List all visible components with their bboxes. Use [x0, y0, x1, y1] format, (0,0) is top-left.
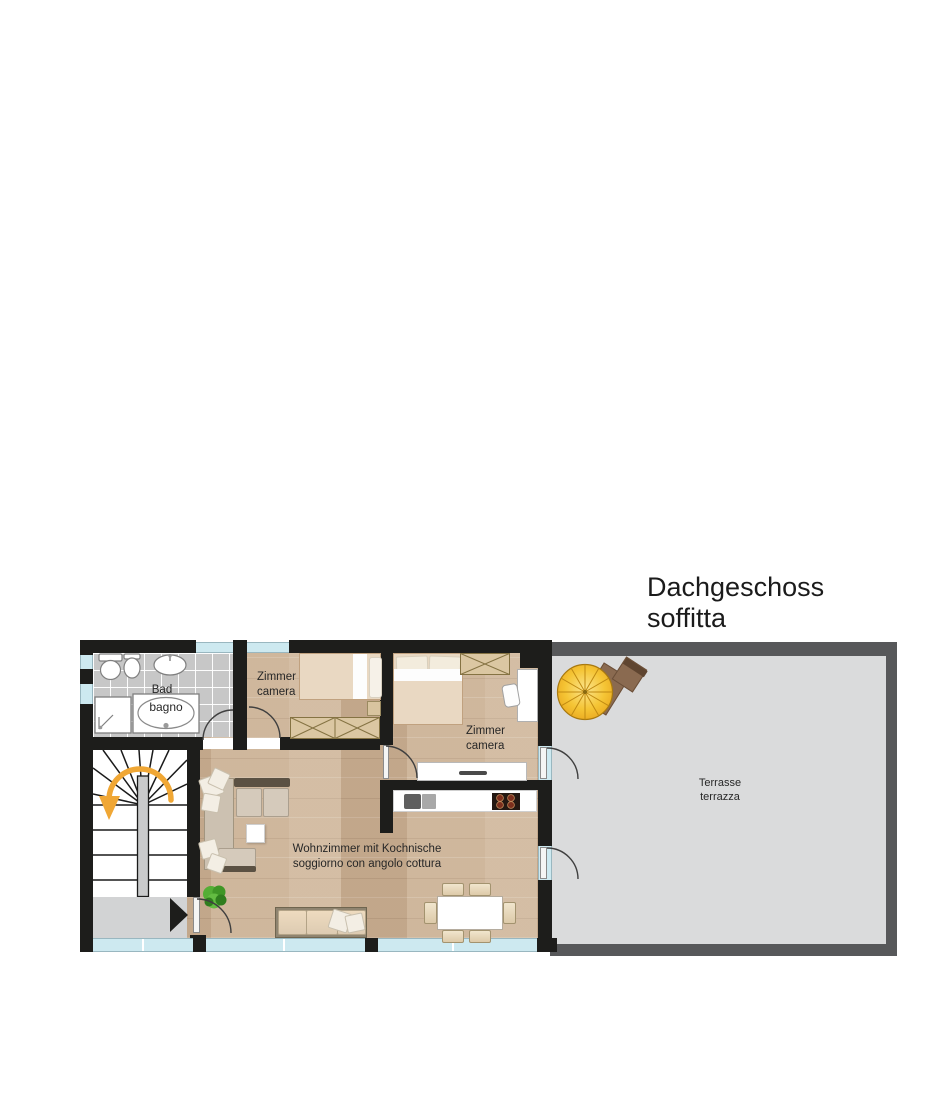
bedroom-large-label-de: Zimmer — [466, 724, 505, 739]
wall-stairwell-right — [187, 737, 200, 897]
bathroom-label-it: bagno — [140, 700, 192, 715]
bedroom-small-label: Zimmer camera — [257, 670, 296, 699]
terrace-label-de: Terrasse — [685, 776, 755, 790]
wall-bottom-pier-right — [537, 938, 557, 952]
dining-chair — [424, 902, 437, 924]
sofa-cushion — [263, 788, 289, 817]
wall-left-2 — [80, 669, 93, 684]
floor-title: Dachgeschoss soffitta — [647, 572, 824, 634]
window-left-2 — [80, 684, 93, 704]
dining-table — [437, 896, 503, 930]
dining-chair — [442, 930, 464, 943]
floor-title-de: Dachgeschoss — [647, 572, 824, 603]
bed-sheet-fold — [394, 669, 462, 681]
dining-chair — [469, 883, 491, 896]
kitchen-hob-icon — [492, 793, 520, 810]
sofa-back — [234, 778, 290, 787]
living-room-label-it: soggiorno con angolo cottura — [277, 857, 457, 872]
sofa-pillow — [201, 793, 222, 814]
bidet-icon — [124, 654, 140, 678]
sink-icon — [154, 654, 186, 675]
staircase — [93, 750, 187, 897]
stair-center-divider — [138, 776, 149, 897]
terrace-label-it: terrazza — [685, 790, 755, 804]
wall-bottom-pier-2 — [193, 938, 206, 952]
kitchen-sink — [404, 794, 421, 809]
terrace-door-bottom — [546, 845, 582, 883]
parasol-icon — [556, 663, 614, 721]
bed-single — [299, 653, 381, 700]
wall-left-1 — [80, 640, 93, 655]
bedroom2-door — [382, 743, 422, 781]
wall-top-2 — [289, 640, 552, 653]
terrace-label: Terrasse terrazza — [685, 776, 755, 804]
wall-bottom-pier-left — [80, 938, 93, 952]
dresser — [417, 762, 527, 781]
terrace-door-top — [546, 745, 582, 783]
bathroom-label-de: Bad — [140, 683, 184, 698]
sofa-cushion — [236, 788, 262, 817]
dresser-handle — [459, 771, 487, 775]
entry-arrow-icon — [170, 898, 188, 932]
wall-bottom-pier-3 — [365, 938, 378, 952]
wall-bedroom2-bottom — [380, 780, 552, 790]
living-room-label: Wohnzimmer mit Kochnische soggiorno con … — [277, 842, 457, 871]
window-left-1 — [80, 655, 93, 669]
dining-chair — [442, 883, 464, 896]
sofa-pillow — [344, 912, 365, 933]
floorplan-canvas: Dachgeschoss soffitta — [0, 0, 933, 1115]
wall-top-1 — [80, 640, 196, 653]
wardrobe-bedroom2 — [460, 653, 510, 675]
bedroom-large-label: Zimmer camera — [466, 724, 505, 753]
window-mullion-2 — [283, 939, 285, 951]
nightstand — [367, 701, 381, 716]
bathroom-door — [200, 706, 236, 744]
bed-double — [393, 653, 463, 725]
bedroom-large-label-it: camera — [466, 739, 505, 754]
shower-icon — [95, 697, 131, 733]
floor-title-it: soffitta — [647, 603, 824, 634]
bedroom-small-label-it: camera — [257, 685, 296, 700]
terrace-wall-top — [550, 642, 897, 656]
wall-right-2 — [538, 780, 552, 846]
window-top-2 — [246, 642, 289, 653]
bedroom1-door — [246, 705, 282, 743]
dining-chair — [503, 902, 516, 924]
wardrobe-bedroom1 — [290, 717, 380, 739]
terrace-wall-right — [886, 642, 897, 956]
bed-sheet-fold — [353, 654, 367, 699]
toilet-icon — [99, 654, 122, 680]
bedroom-small-label-de: Zimmer — [257, 670, 296, 685]
living-room-label-de: Wohnzimmer mit Kochnische — [277, 842, 457, 857]
window-mullion-1 — [142, 939, 144, 951]
sofa-cushion — [278, 910, 307, 935]
desk — [517, 669, 538, 722]
dining-chair — [469, 930, 491, 943]
wall-right-3 — [538, 880, 552, 938]
coffee-table — [246, 824, 265, 843]
entry-door — [195, 895, 235, 937]
wall-left-3 — [80, 704, 93, 938]
kitchen-drainer — [422, 794, 436, 809]
bed-pillow — [369, 657, 382, 698]
wall-right-1 — [538, 640, 552, 746]
terrace-wall-bottom — [550, 944, 897, 956]
